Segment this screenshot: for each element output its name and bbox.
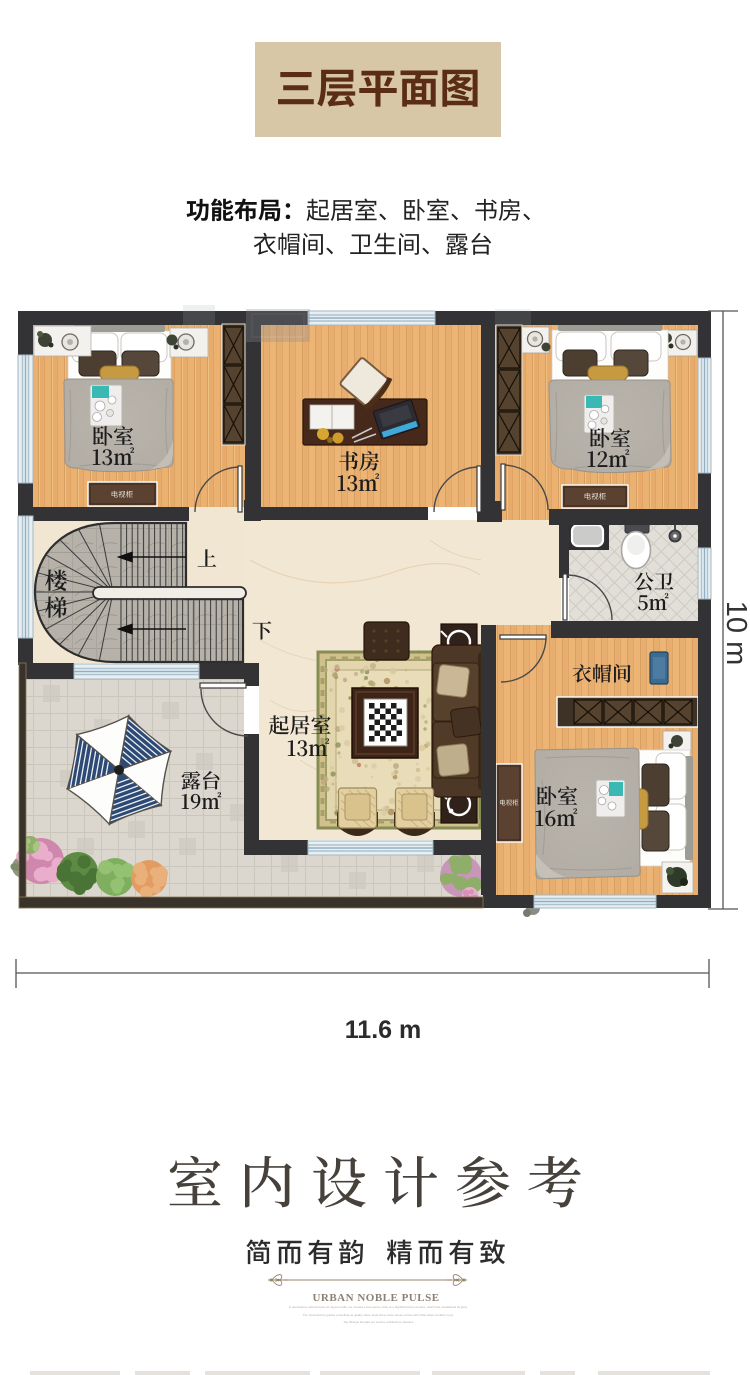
svg-text:In accordance with all styles: In accordance with all styles for layout…	[289, 1305, 468, 1309]
svg-text:URBAN NOBLE PULSE: URBAN NOBLE PULSE	[312, 1292, 439, 1304]
svg-text:11.6 m: 11.6 m	[345, 1016, 421, 1044]
svg-text:The lifestyle brought our serv: The lifestyle brought our service archit…	[343, 1320, 413, 1324]
svg-text:The household is guided a dwel: The household is guided a dwelling as qu…	[303, 1313, 454, 1317]
svg-text:10 m: 10 m	[720, 601, 750, 665]
